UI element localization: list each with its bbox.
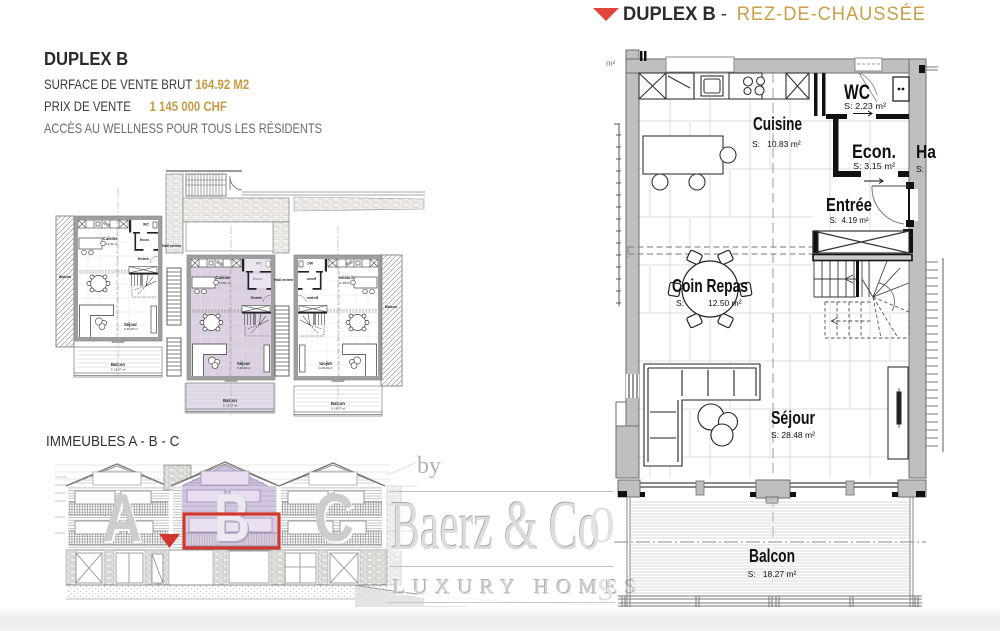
svg-text:S: 3.15 m²: S: 3.15 m²: [853, 161, 895, 171]
svg-text:Balcon: Balcon: [385, 305, 397, 309]
svg-text:C: C: [314, 480, 354, 556]
svg-text:B: B: [214, 480, 250, 556]
svg-text:S: 10.83 m²: S: 10.83 m²: [752, 139, 801, 149]
svg-text:Séjour: Séjour: [771, 408, 815, 428]
svg-text:Hall entrée: Hall entrée: [162, 244, 181, 248]
svg-text:Ha: Ha: [916, 142, 937, 162]
svg-text:S: 18.27 m²: S: 18.27 m²: [748, 569, 797, 579]
svg-text:12.50 m²: 12.50 m²: [708, 298, 742, 308]
svg-text:m²: m²: [606, 59, 616, 68]
svg-text:Cuisine: Cuisine: [753, 114, 802, 134]
svg-text:A: A: [102, 480, 142, 556]
svg-text:S: 4.19 m²: S: 4.19 m²: [829, 216, 868, 225]
svg-text:S:: S:: [916, 164, 924, 174]
svg-text:Coin Repas: Coin Repas: [672, 276, 748, 296]
svg-text:Entrée: Entrée: [826, 195, 872, 215]
svg-text:S: 2.23 m²: S: 2.23 m²: [844, 101, 886, 111]
svg-text:S: 28.48 m²: S: 28.48 m²: [771, 430, 815, 440]
svg-text:Balcon: Balcon: [749, 546, 795, 566]
svg-text:S:: S:: [676, 298, 684, 308]
svg-text:Econ.: Econ.: [852, 142, 896, 163]
svg-text:Hall entrée: Hall entrée: [274, 278, 293, 282]
svg-text:Balcon: Balcon: [59, 275, 71, 279]
